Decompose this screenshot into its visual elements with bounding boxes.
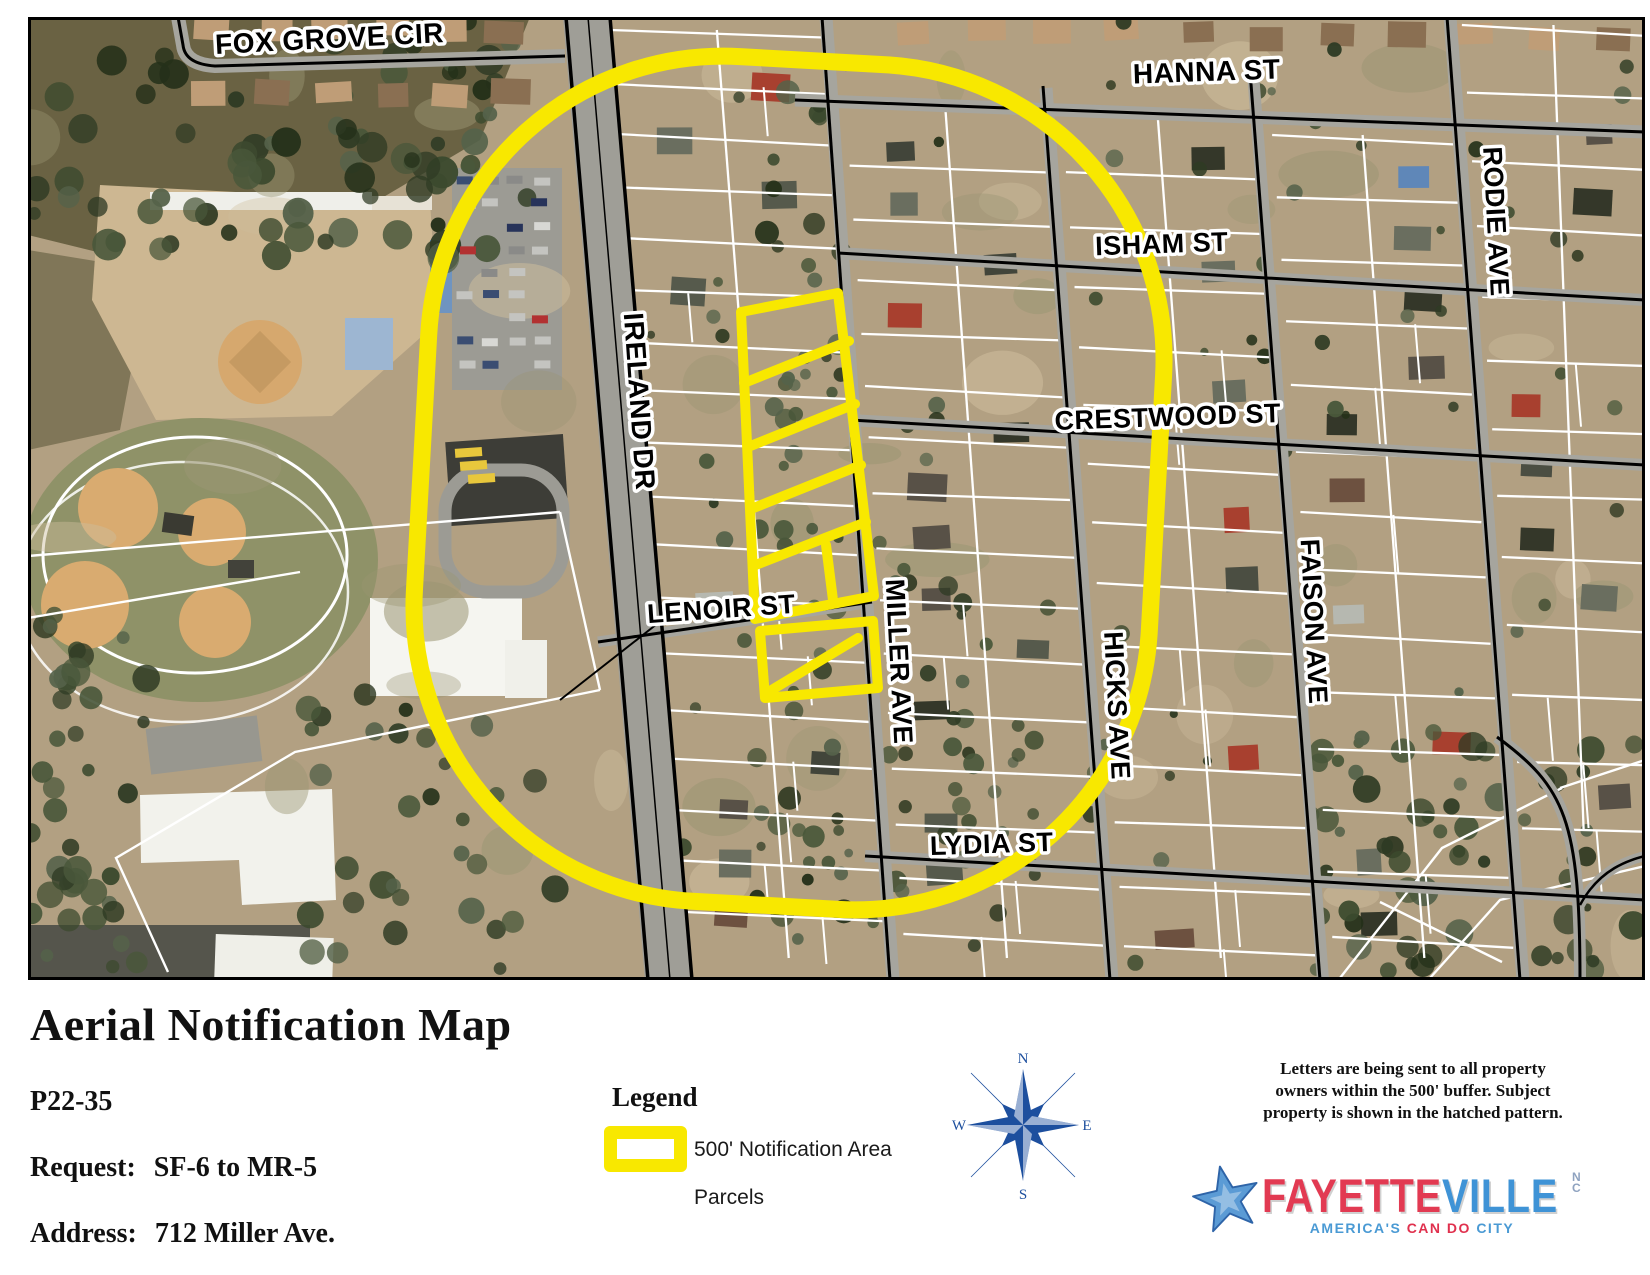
legend-item-notification-area: 500' Notification Area — [694, 1138, 892, 1162]
fayetteville-logo: FAYETTEVILLE N C AMERICA'S CAN DO CITY — [1180, 1160, 1620, 1250]
compass-north-label: N — [1018, 1051, 1029, 1067]
address-line: Address:712 Miller Ave. — [30, 1218, 335, 1250]
legend-item-parcels: Parcels — [694, 1186, 764, 1210]
request-label: Request: — [30, 1152, 136, 1183]
logo-wordmark: FAYETTEVILLE — [1262, 1168, 1558, 1223]
street-label-lydia-st: LYDIA ST — [929, 827, 1054, 861]
aerial-notification-map-page: FOX GROVE CIRHANNA STISHAM STCRESTWOOD S… — [0, 0, 1650, 1275]
logo-nc-text: N C — [1572, 1172, 1581, 1194]
street-label-isham-st: ISHAM ST — [1095, 227, 1229, 262]
case-number: P22-35 — [30, 1086, 112, 1118]
compass-west-label: W — [952, 1118, 967, 1134]
compass-rose: N S W E — [943, 1045, 1103, 1205]
aerial-map-canvas: FOX GROVE CIRHANNA STISHAM STCRESTWOOD S… — [28, 17, 1645, 980]
request-value: SF-6 to MR-5 — [154, 1152, 317, 1183]
notification-note: Letters are being sent to all propertyow… — [1222, 1058, 1604, 1124]
logo-fayette-text: FAYETTE — [1262, 1169, 1442, 1222]
legend-heading: Legend — [612, 1082, 698, 1113]
subject-property-hatched-parcels — [741, 293, 878, 698]
logo-tagline: AMERICA'S CAN DO CITY — [1262, 1220, 1562, 1236]
page-title: Aerial Notification Map — [30, 998, 512, 1051]
address-label: Address: — [30, 1218, 137, 1249]
compass-south-label: S — [1019, 1187, 1027, 1203]
street-label-crestwood-st: CRESTWOOD ST — [1054, 398, 1281, 436]
compass-east-label: E — [1082, 1118, 1091, 1134]
street-label-lenoir-st: LENOIR ST — [646, 589, 796, 629]
request-line: Request:SF-6 to MR-5 — [30, 1152, 317, 1184]
address-value: 712 Miller Ave. — [155, 1218, 335, 1249]
logo-ville-text: VILLE — [1442, 1169, 1558, 1222]
aerial-map: FOX GROVE CIRHANNA STISHAM STCRESTWOOD S… — [28, 17, 1645, 980]
notification-area-swatch — [604, 1126, 687, 1172]
street-label-miller-ave: MILLER AVE — [880, 578, 919, 745]
street-label-hanna-st: HANNA ST — [1132, 53, 1281, 89]
logo-star-icon — [1188, 1162, 1266, 1238]
street-label-rodie-ave: RODIE AVE — [1477, 146, 1515, 297]
